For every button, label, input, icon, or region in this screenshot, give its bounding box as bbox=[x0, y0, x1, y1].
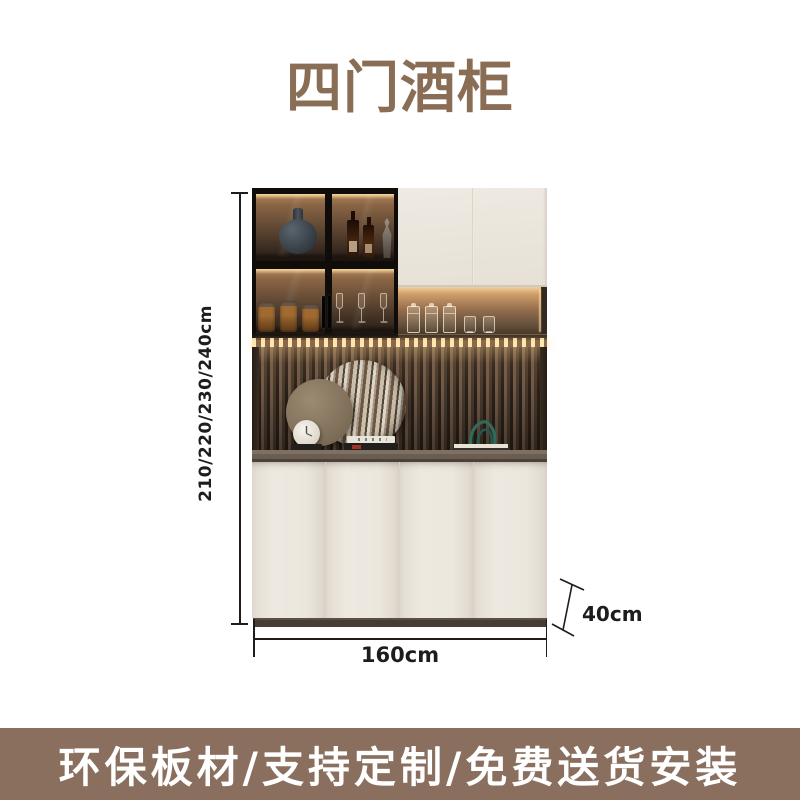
promo-banner: 环保板材/支持定制/免费送货安装 bbox=[0, 728, 800, 800]
cabinet-door bbox=[252, 462, 325, 618]
door-handle bbox=[328, 296, 331, 328]
glass-canister bbox=[407, 306, 420, 333]
cabinet-door bbox=[400, 462, 473, 618]
decor-champagne-flutes bbox=[334, 293, 392, 333]
product-detail-page: 四门酒柜 bbox=[0, 0, 800, 800]
storage-jar bbox=[302, 304, 319, 332]
decor-jars bbox=[258, 299, 322, 332]
height-dimension-cap-top bbox=[231, 192, 248, 194]
glass-canister bbox=[425, 306, 438, 333]
niche-side-panel bbox=[252, 347, 259, 450]
cabinet-door bbox=[326, 462, 399, 618]
champagne-flute bbox=[358, 293, 366, 333]
decor-glassware bbox=[407, 304, 499, 333]
champagne-flute bbox=[336, 293, 344, 333]
counter-top bbox=[252, 450, 547, 462]
glass-tumbler bbox=[464, 316, 476, 333]
lower-cabinet bbox=[252, 462, 547, 618]
glass-tumbler bbox=[483, 316, 495, 333]
clock-face bbox=[293, 420, 320, 447]
decor-vase bbox=[279, 208, 317, 254]
width-dimension-tick-left bbox=[253, 619, 255, 657]
cabinet-door bbox=[474, 462, 547, 618]
door-handle bbox=[322, 296, 325, 328]
decor-figurine bbox=[380, 218, 394, 258]
cabinet-plinth bbox=[253, 618, 547, 627]
width-dimension-line bbox=[253, 638, 547, 640]
shelf-side-wall bbox=[541, 287, 547, 340]
upper-white-cabinet bbox=[398, 188, 547, 287]
vase-body bbox=[279, 219, 317, 254]
width-dimension-label: 160cm bbox=[320, 643, 480, 667]
lit-open-shelf bbox=[398, 287, 547, 340]
storage-jar bbox=[280, 301, 297, 332]
glass-canister bbox=[443, 306, 456, 333]
height-dimension-line bbox=[239, 193, 241, 624]
cabinet-edge-shadow bbox=[543, 188, 547, 285]
glass-door-handles bbox=[322, 296, 331, 328]
decor-clock bbox=[293, 420, 320, 447]
niche-side-panel bbox=[540, 347, 547, 450]
width-dimension-tick-right bbox=[546, 619, 548, 657]
height-dimension-cap-bottom bbox=[231, 623, 248, 625]
wine-bottle bbox=[363, 225, 374, 258]
decor-teal-sculpture bbox=[464, 417, 504, 447]
decor-book-stack bbox=[344, 436, 398, 451]
height-dimension-label: 210/220/230/240cm bbox=[186, 292, 226, 514]
storage-jar bbox=[258, 302, 275, 332]
promo-banner-text: 环保板材/支持定制/免费送货安装 bbox=[59, 734, 742, 795]
led-light-strip bbox=[252, 338, 547, 347]
champagne-flute bbox=[380, 293, 388, 333]
door-gap bbox=[472, 188, 474, 285]
wine-bottle bbox=[347, 220, 359, 258]
decor-wine-bottles bbox=[347, 212, 395, 258]
product-image: 210/220/230/240cm 160cm 40cm bbox=[0, 0, 800, 800]
depth-dimension-label: 40cm bbox=[582, 602, 643, 626]
book bbox=[347, 436, 395, 443]
